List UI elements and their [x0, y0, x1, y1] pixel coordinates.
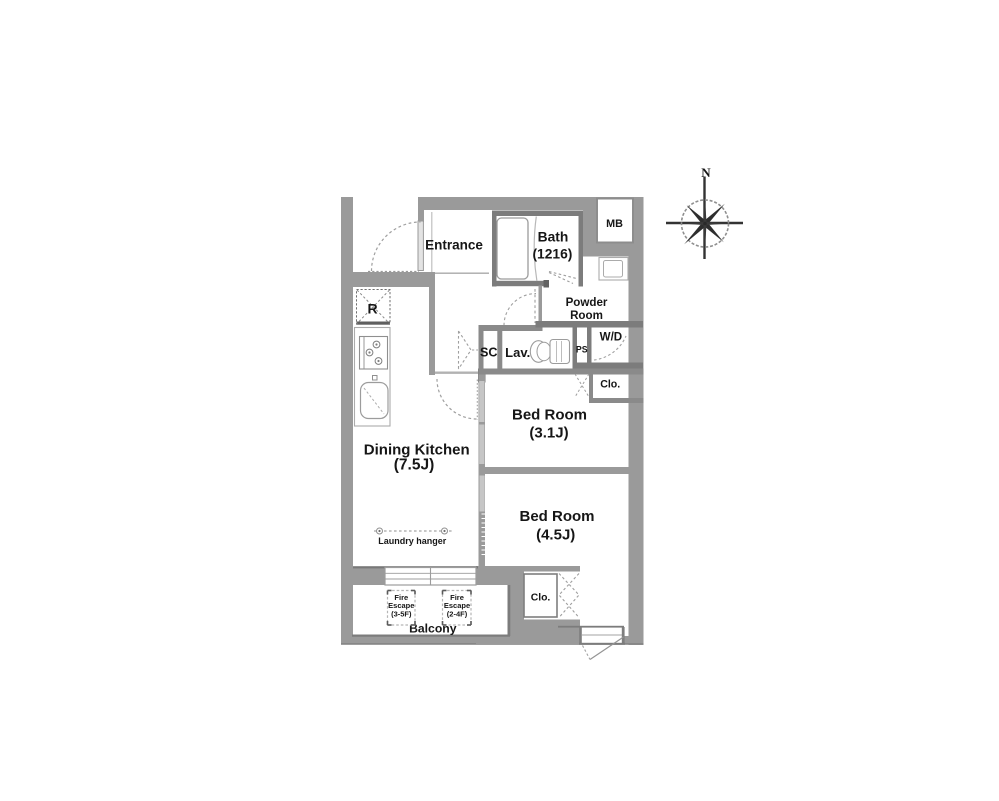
svg-text:Bed Room: Bed Room — [512, 406, 587, 423]
svg-text:MB: MB — [606, 218, 623, 230]
svg-text:Clo.: Clo. — [600, 378, 620, 390]
svg-text:(3.1J): (3.1J) — [529, 425, 568, 442]
svg-text:(7.5J): (7.5J) — [394, 457, 435, 474]
svg-text:Room: Room — [570, 309, 603, 322]
svg-text:(3-5F): (3-5F) — [391, 610, 412, 619]
svg-text:PS: PS — [576, 345, 588, 355]
svg-text:Bath: Bath — [538, 230, 569, 245]
svg-text:SC: SC — [480, 346, 498, 360]
svg-text:N: N — [701, 165, 711, 180]
svg-text:Lav.: Lav. — [505, 345, 530, 360]
svg-text:(4.5J): (4.5J) — [536, 527, 575, 544]
svg-text:Clo.: Clo. — [531, 593, 551, 604]
svg-text:(1216): (1216) — [532, 247, 572, 262]
svg-text:Entrance: Entrance — [425, 238, 483, 253]
svg-text:Powder: Powder — [566, 296, 608, 309]
svg-text:W/D: W/D — [600, 331, 623, 344]
svg-text:R: R — [367, 301, 377, 317]
svg-text:Laundry hanger: Laundry hanger — [378, 536, 447, 546]
svg-text:(2-4F): (2-4F) — [447, 610, 468, 619]
svg-text:Bed Room: Bed Room — [520, 508, 595, 525]
